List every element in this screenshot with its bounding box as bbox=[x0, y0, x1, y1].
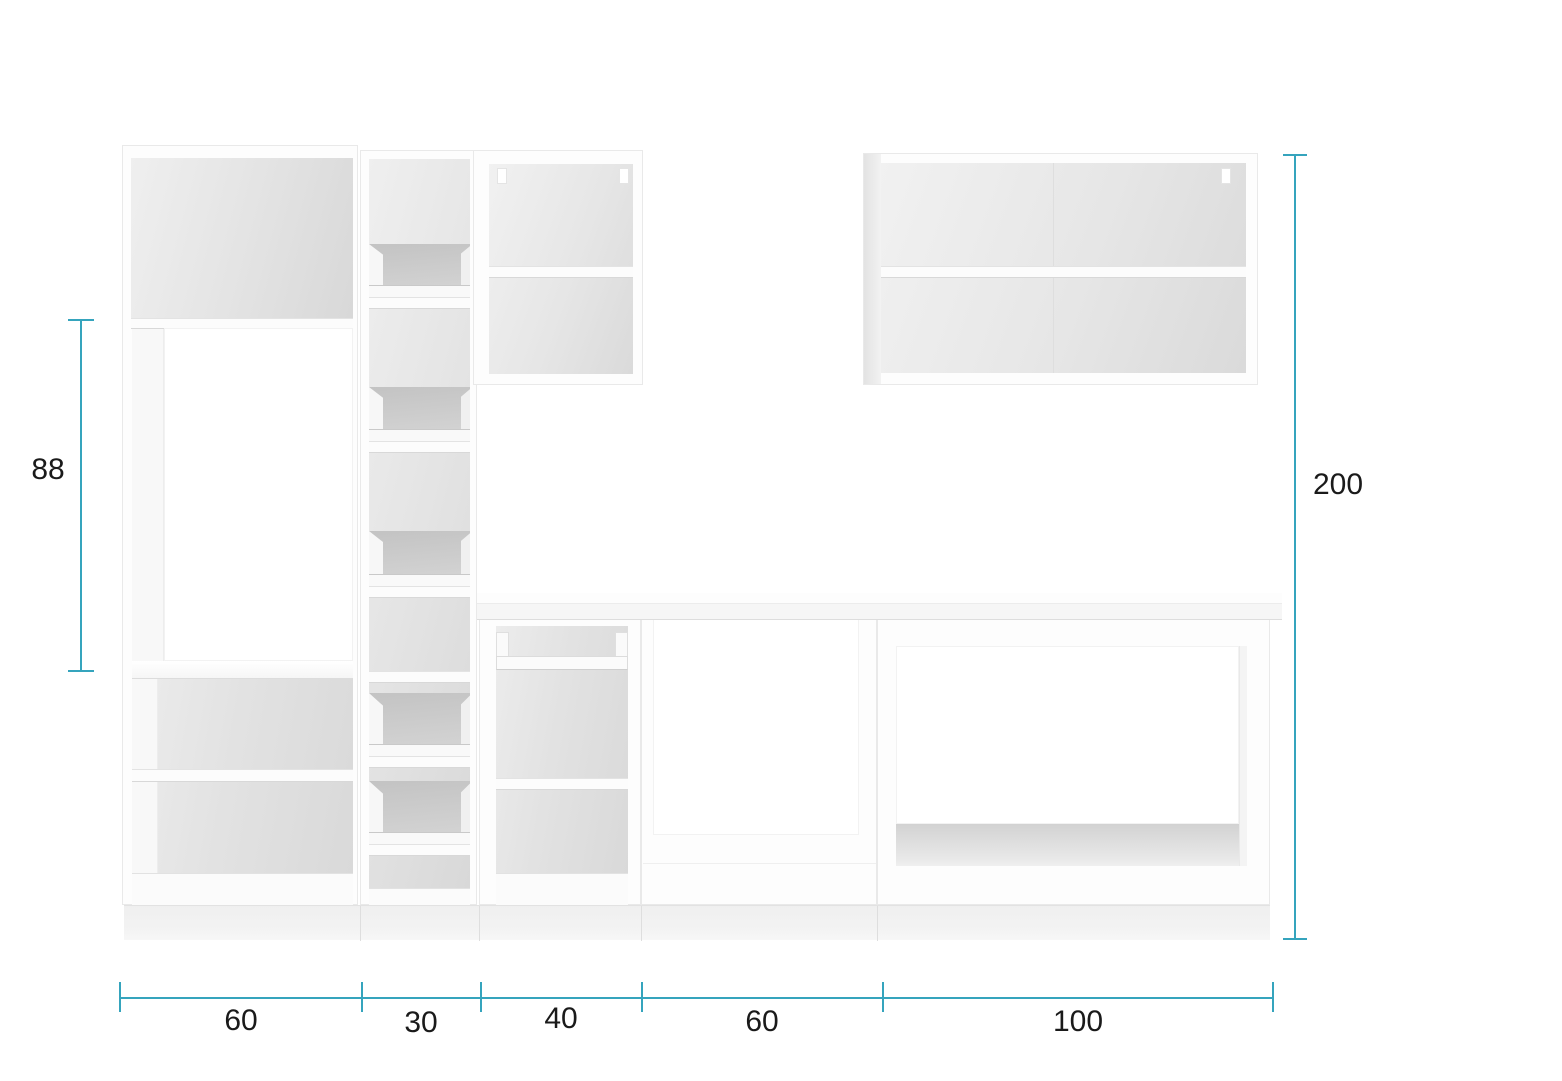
plinth bbox=[124, 905, 1270, 940]
dimension-tick bbox=[119, 982, 121, 1012]
plinth-seam bbox=[877, 906, 878, 941]
pullout-tray bbox=[369, 244, 470, 297]
hinge-plate-icon bbox=[498, 169, 506, 183]
tall-cabinet-60 bbox=[122, 145, 358, 905]
larder-bottom-rail bbox=[369, 888, 470, 906]
hinge-plate-icon bbox=[1222, 169, 1230, 183]
dimension-label-60b: 60 bbox=[745, 1007, 778, 1037]
tray-front-lip bbox=[369, 832, 470, 844]
larder-shelf bbox=[369, 586, 470, 598]
tray-front-lip bbox=[369, 285, 470, 297]
dimension-tick bbox=[1272, 982, 1274, 1012]
larder-shelf bbox=[369, 441, 470, 453]
tall-cabinet-lower-shelf bbox=[132, 769, 353, 782]
dimension-label-200: 200 bbox=[1313, 470, 1363, 500]
dimension-tick bbox=[68, 670, 94, 672]
larder-shelf bbox=[369, 671, 470, 683]
countertop-front-edge bbox=[477, 604, 1282, 620]
pullout-tray bbox=[369, 531, 470, 586]
dimension-line-left-height bbox=[80, 320, 82, 672]
tall-cabinet-top-box-interior bbox=[131, 158, 353, 318]
kitchen-dimension-diagram: 88 200 60 30 40 60 100 bbox=[0, 0, 1562, 1081]
pullout-tray bbox=[369, 387, 470, 441]
wall-cabinet-100-shelf bbox=[881, 266, 1246, 278]
dimension-label-100: 100 bbox=[1053, 1007, 1103, 1037]
plinth-seam bbox=[641, 906, 642, 941]
dimension-tick bbox=[68, 319, 94, 321]
drawer-bracket bbox=[615, 632, 628, 659]
dimension-line-right-height bbox=[1294, 155, 1296, 940]
dimension-tick bbox=[1283, 154, 1307, 156]
dimension-label-30: 30 bbox=[404, 1008, 437, 1038]
dimension-tick bbox=[1283, 938, 1307, 940]
wall-cabinet-100-left-face bbox=[864, 154, 881, 384]
tall-cabinet-mid-shelf-top bbox=[132, 661, 353, 679]
larder-cabinet-30 bbox=[360, 150, 477, 905]
oven-base-cabinet-60 bbox=[641, 617, 877, 905]
dimension-label-88: 88 bbox=[31, 455, 64, 485]
tray-front-lip bbox=[369, 744, 470, 756]
oven-cavity bbox=[653, 619, 859, 835]
pullout-tray bbox=[369, 781, 470, 844]
drawer-bracket bbox=[496, 632, 509, 659]
dimension-tick bbox=[480, 982, 482, 1012]
dimension-label-40: 40 bbox=[544, 1004, 577, 1034]
towel-rail bbox=[496, 656, 628, 670]
dimension-label-60a: 60 bbox=[224, 1006, 257, 1036]
plinth-seam bbox=[479, 906, 480, 941]
tall-cabinet-bottom-rail bbox=[132, 873, 353, 906]
base-cabinet-100-floor bbox=[896, 824, 1239, 866]
base-cabinet-100 bbox=[877, 617, 1270, 905]
dimension-tick bbox=[641, 982, 643, 1012]
wall-cabinet-40 bbox=[473, 150, 643, 385]
dimension-tick bbox=[361, 982, 363, 1012]
base-cabinet-100-opening bbox=[896, 646, 1239, 824]
wall-cabinet-100 bbox=[863, 153, 1258, 385]
tray-front-lip bbox=[369, 429, 470, 441]
front-seam bbox=[643, 863, 876, 864]
dimension-line-bottom-widths bbox=[120, 997, 1274, 999]
base-cabinet-100-right-wall bbox=[1239, 646, 1247, 866]
appliance-opening-88 bbox=[164, 328, 353, 661]
larder-shelf bbox=[369, 297, 470, 309]
tray-front-lip bbox=[369, 574, 470, 586]
plinth-seam bbox=[360, 906, 361, 941]
base-cabinet-40-shelf bbox=[496, 778, 628, 790]
base-cabinet-40-bottom-rail bbox=[496, 873, 628, 905]
pullout-tray bbox=[369, 693, 470, 756]
dimension-tick bbox=[882, 982, 884, 1012]
larder-shelf bbox=[369, 844, 470, 856]
tall-cabinet-side-panel bbox=[132, 329, 164, 661]
countertop-surface bbox=[477, 593, 1282, 604]
hinge-plate-icon bbox=[620, 169, 628, 183]
base-cabinet-40 bbox=[479, 617, 641, 905]
wall-cabinet-40-shelf bbox=[489, 266, 633, 278]
larder-shelf bbox=[369, 756, 470, 768]
